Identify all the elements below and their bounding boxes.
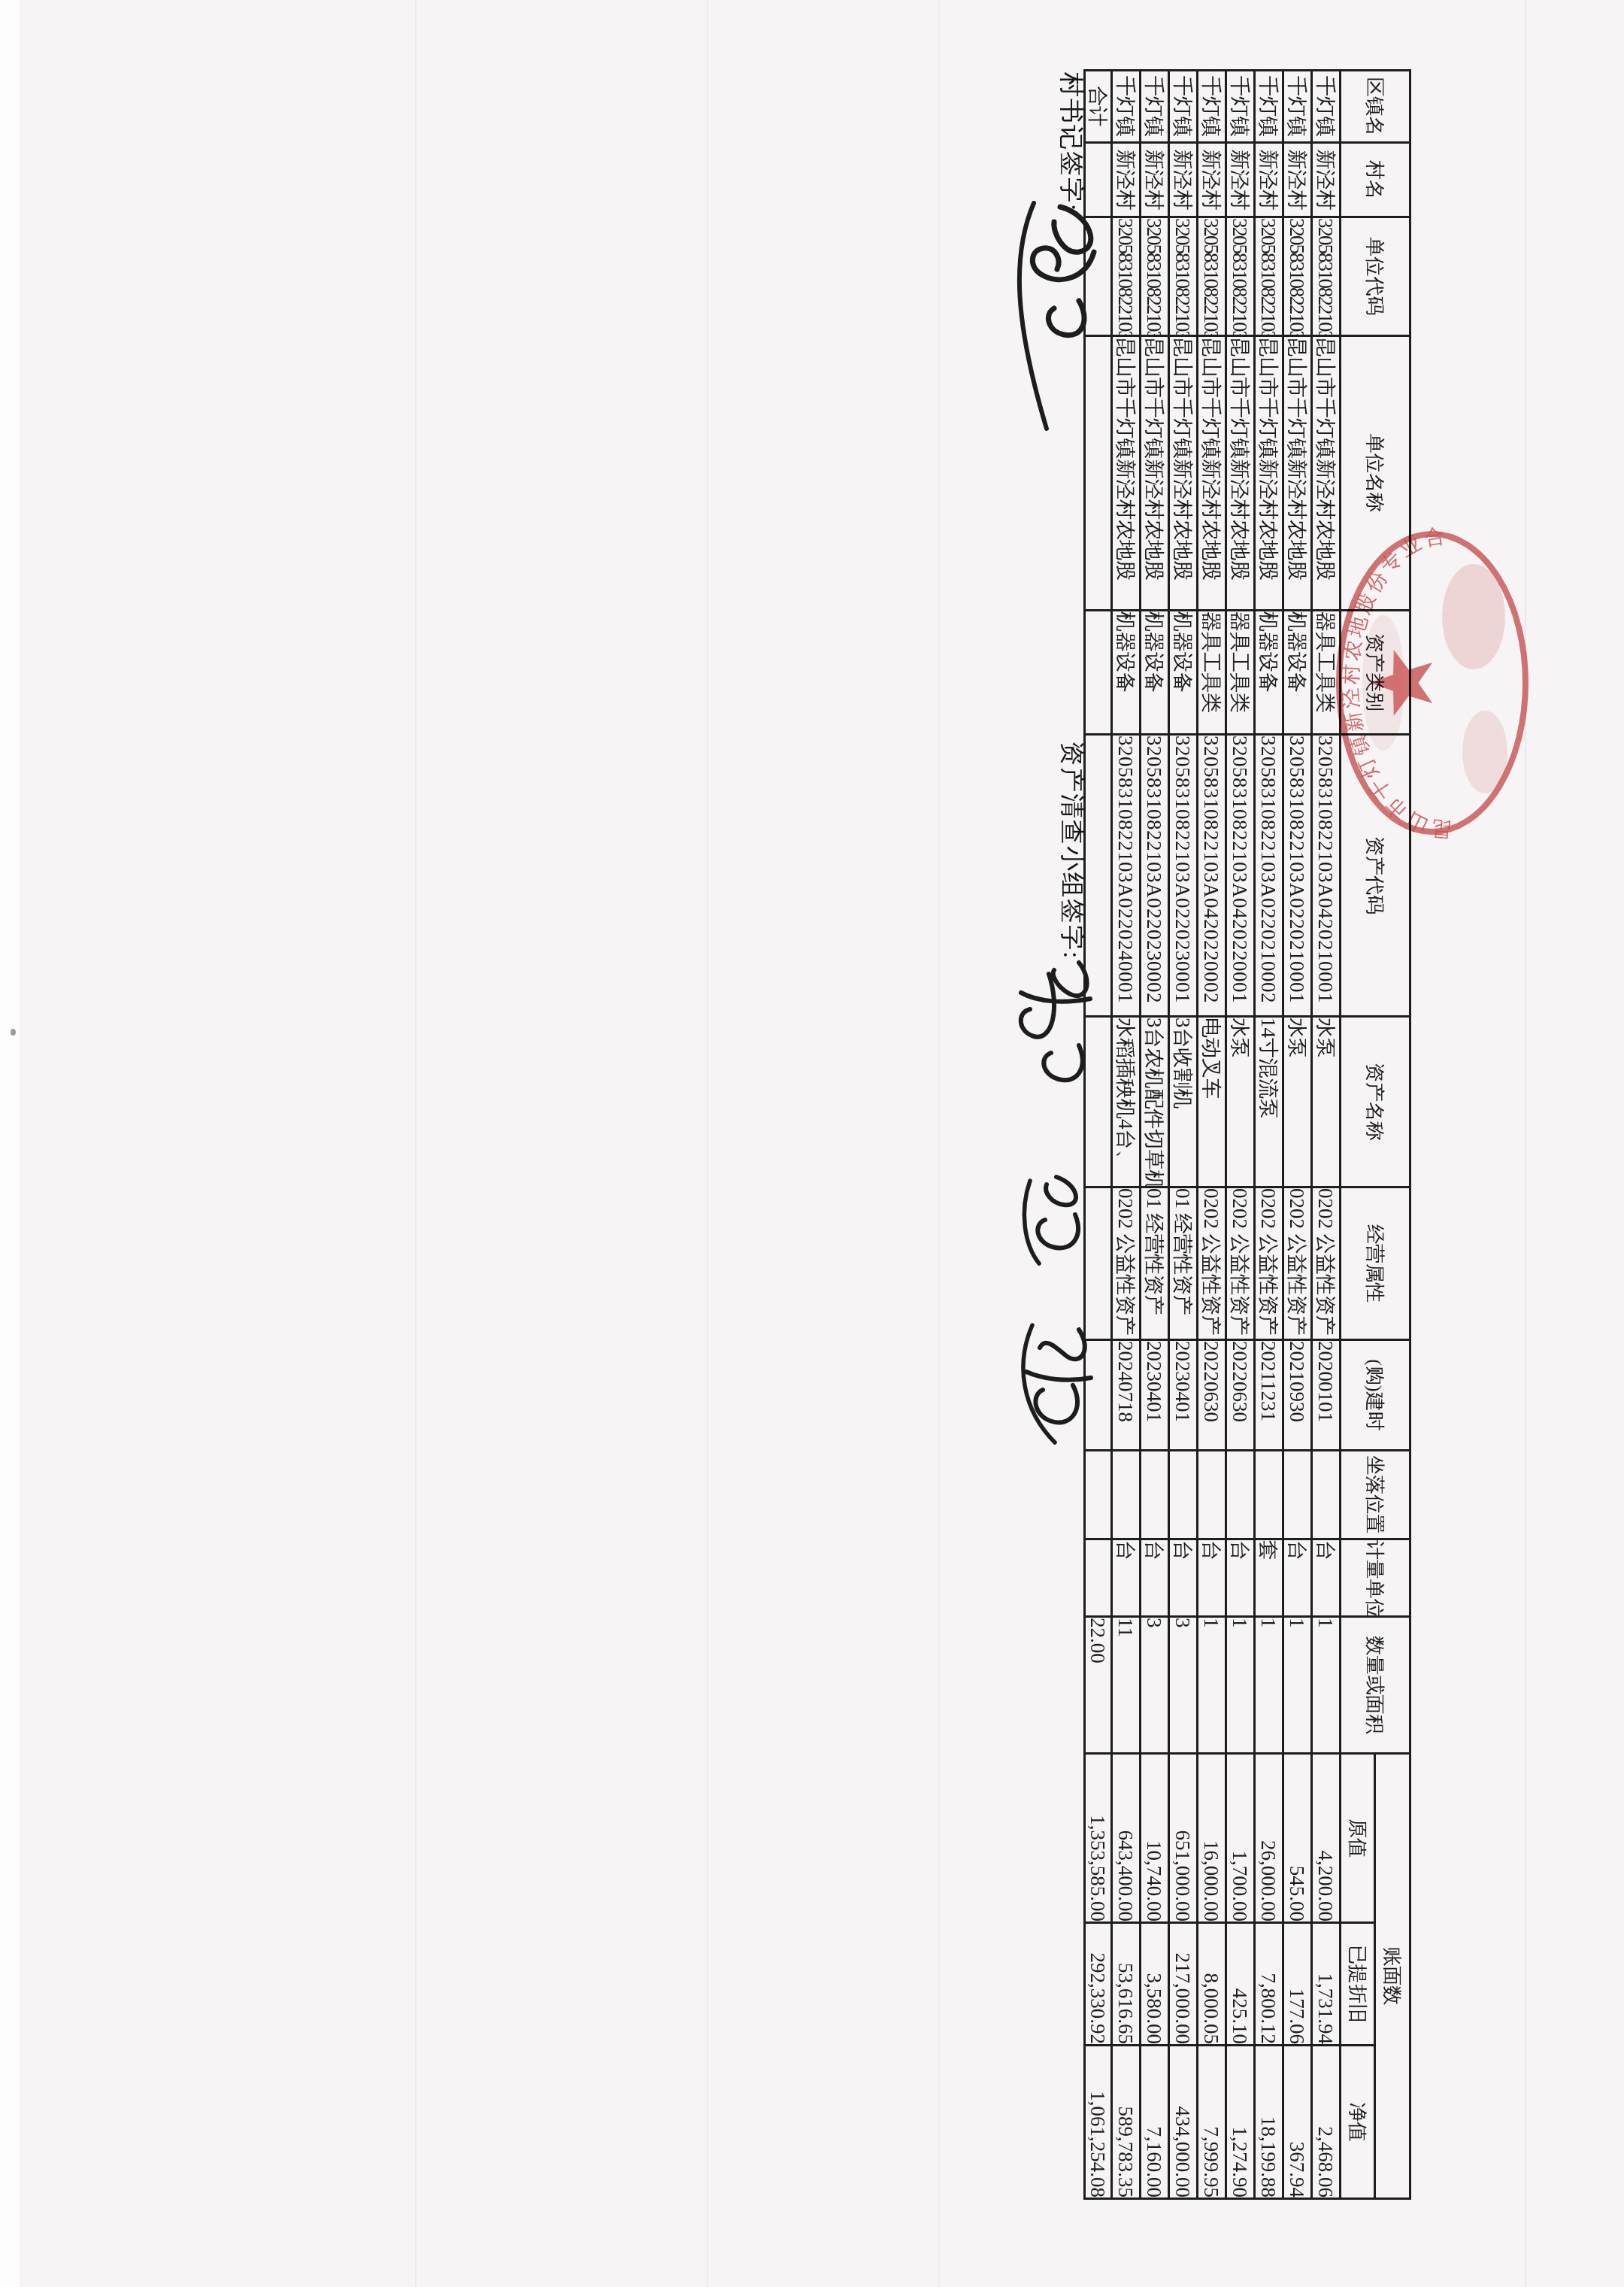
cell-town: 千灯镇: [1141, 71, 1169, 143]
cell-total-quantity: 22.00: [1085, 1617, 1112, 1754]
paper-crease: [707, 0, 708, 2287]
cell-quantity: 1: [1312, 1617, 1341, 1754]
cell-asset-code: 32058310822103A0420220002: [1198, 735, 1226, 1017]
cell-total-net-value: 1,061,254.08: [1085, 2046, 1112, 2199]
cell-unit: 台: [1112, 1539, 1141, 1617]
cell-unit: 台: [1312, 1539, 1341, 1617]
cell-asset-name: 水稻插秧机4台、: [1112, 1017, 1141, 1187]
cell-unit: 台: [1198, 1539, 1226, 1617]
cell-asset-code: 32058310822103A0220210002: [1255, 735, 1283, 1017]
table-row: 千灯镇 新泾村 32058310822103 昆山市千灯镇新泾村农地股 器具工具…: [1226, 71, 1255, 2199]
cell-unit-code: 32058310822103: [1198, 217, 1226, 336]
cell-net-value: 7,160.00: [1141, 2046, 1169, 2199]
cell-attribute: 0202 公益性资产: [1226, 1187, 1255, 1340]
cell-attribute: 0202 公益性资产: [1198, 1187, 1226, 1340]
paper-speck: [11, 1029, 16, 1036]
cell-empty: [1085, 611, 1112, 735]
cell-town: 千灯镇: [1198, 71, 1226, 143]
cell-asset-name: 水泵: [1226, 1017, 1255, 1187]
cell-build-date: 20230401: [1169, 1340, 1198, 1451]
cell-location: [1169, 1451, 1198, 1539]
cell-asset-code: 32058310822103A0220240001: [1112, 735, 1141, 1017]
cell-village: 新泾村: [1169, 143, 1198, 217]
cell-depreciation: 7,800.12: [1255, 1923, 1283, 2046]
cell-unit-name: 昆山市千灯镇新泾村农地股: [1112, 336, 1141, 611]
table-row: 千灯镇 新泾村 32058310822103 昆山市千灯镇新泾村农地股 器具工具…: [1198, 71, 1226, 2199]
cell-category: 机器设备: [1283, 611, 1312, 735]
cell-town: 千灯镇: [1226, 71, 1255, 143]
cell-build-date: 20210930: [1283, 1340, 1312, 1451]
paper-crease: [1525, 0, 1526, 2287]
paper-crease: [938, 0, 940, 2287]
cell-category: 器具工具类: [1198, 611, 1226, 735]
cell-quantity: 1: [1255, 1617, 1283, 1754]
inventory-team-signature-3: [1019, 1309, 1101, 1451]
cell-category: 机器设备: [1255, 611, 1283, 735]
cell-attribute: 0202 公益性资产: [1312, 1187, 1341, 1340]
cell-original-value: 1,700.00: [1226, 1754, 1255, 1923]
cell-category: 机器设备: [1169, 611, 1198, 735]
cell-unit: 台: [1169, 1539, 1198, 1617]
header-location: 坐落位置: [1341, 1451, 1410, 1539]
cell-unit-name: 昆山市千灯镇新泾村农地股: [1226, 336, 1255, 611]
header-depreciation: 已提折旧: [1341, 1923, 1375, 2046]
cell-net-value: 589,783.35: [1112, 2046, 1141, 2199]
cell-attribute: 0202 公益性资产: [1283, 1187, 1312, 1340]
cell-village: 新泾村: [1198, 143, 1226, 217]
cell-total-label: 合计: [1085, 71, 1112, 143]
table-row: 千灯镇 新泾村 32058310822103 昆山市千灯镇新泾村农地股 机器设备…: [1255, 71, 1283, 2199]
cell-location: [1226, 1451, 1255, 1539]
header-unit-code: 单位代码: [1341, 217, 1410, 336]
cell-unit-name: 昆山市千灯镇新泾村农地股: [1283, 336, 1312, 611]
header-original-value: 原值: [1341, 1754, 1375, 1923]
cell-build-date: 20200101: [1312, 1340, 1341, 1451]
cell-village: 新泾村: [1312, 143, 1341, 217]
cell-unit-code: 32058310822103: [1141, 217, 1169, 336]
header-asset-name: 资产名称: [1341, 1017, 1410, 1187]
inventory-team-signature-2: [1015, 1158, 1098, 1278]
cell-location: [1198, 1451, 1226, 1539]
cell-unit-name: 昆山市千灯镇新泾村农地股: [1141, 336, 1169, 611]
official-seal-stamp: 昆山市千灯镇新泾村农地股份专业合作社: [1331, 523, 1534, 842]
cell-net-value: 7,999.95: [1198, 2046, 1226, 2199]
header-unit: 计量单位: [1341, 1539, 1410, 1617]
cell-build-date: 20230401: [1141, 1340, 1169, 1451]
cell-unit-name: 昆山市千灯镇新泾村农地股: [1255, 336, 1283, 611]
cell-unit: 台: [1141, 1539, 1169, 1617]
cell-asset-name: 水泵: [1283, 1017, 1312, 1187]
cell-depreciation: 1,731.94: [1312, 1923, 1341, 2046]
header-net-value: 净值: [1341, 2046, 1375, 2199]
cell-unit-code: 32058310822103: [1226, 217, 1255, 336]
inventory-team-signature-label: 资产清查小组签字:: [1055, 741, 1089, 960]
cell-depreciation: 8,000.05: [1198, 1923, 1226, 2046]
cell-asset-name: 14寸混流泵: [1255, 1017, 1283, 1187]
table-row: 千灯镇 新泾村 32058310822103 昆山市千灯镇新泾村农地股 机器设备…: [1112, 71, 1141, 2199]
cell-asset-code: 32058310822103A0220230001: [1169, 735, 1198, 1017]
cell-unit-name: 昆山市千灯镇新泾村农地股: [1198, 336, 1226, 611]
cell-attribute: 01 经营性资产: [1141, 1187, 1169, 1340]
cell-asset-name: 3台收割机: [1169, 1017, 1198, 1187]
cell-town: 千灯镇: [1255, 71, 1283, 143]
cell-asset-code: 32058310822103A0420220001: [1226, 735, 1255, 1017]
cell-village: 新泾村: [1112, 143, 1141, 217]
cell-unit: 套: [1255, 1539, 1283, 1617]
header-quantity: 数量或面积: [1341, 1617, 1410, 1754]
cell-village: 新泾村: [1283, 143, 1312, 217]
cell-unit: 台: [1283, 1539, 1312, 1617]
cell-quantity: 1: [1198, 1617, 1226, 1754]
cell-unit-code: 32058310822103: [1312, 217, 1341, 336]
table-row: 千灯镇 新泾村 32058310822103 昆山市千灯镇新泾村农地股 机器设备…: [1169, 71, 1198, 2199]
cell-village: 新泾村: [1141, 143, 1169, 217]
cell-original-value: 16,000.00: [1198, 1754, 1226, 1923]
cell-empty: [1085, 1539, 1112, 1617]
table-row: 千灯镇 新泾村 32058310822103 昆山市千灯镇新泾村农地股 机器设备…: [1283, 71, 1312, 2199]
cell-original-value: 643,400.00: [1112, 1754, 1141, 1923]
cell-town: 千灯镇: [1169, 71, 1198, 143]
cell-depreciation: 3,580.00: [1141, 1923, 1169, 2046]
cell-category: 机器设备: [1141, 611, 1169, 735]
cell-net-value: 2,468.06: [1312, 2046, 1341, 2199]
cell-location: [1283, 1451, 1312, 1539]
cell-asset-code: 32058310822103A0220210001: [1283, 735, 1312, 1017]
cell-unit-code: 32058310822103: [1112, 217, 1141, 336]
cell-original-value: 4,200.00: [1312, 1754, 1341, 1923]
cell-depreciation: 425.10: [1226, 1923, 1255, 2046]
header-attribute: 经营属性: [1341, 1187, 1410, 1340]
header-town: 区镇名: [1341, 71, 1410, 143]
header-book-value-group: 账面数: [1375, 1754, 1410, 2199]
header-build-date: (购)建时: [1341, 1340, 1410, 1451]
cell-quantity: 3: [1141, 1617, 1169, 1754]
cell-unit-code: 32058310822103: [1169, 217, 1198, 336]
cell-depreciation: 53,616.65: [1112, 1923, 1141, 2046]
cell-original-value: 545.00: [1283, 1754, 1312, 1923]
cell-original-value: 26,000.00: [1255, 1754, 1283, 1923]
cell-location: [1312, 1451, 1341, 1539]
cell-unit-code: 32058310822103: [1283, 217, 1312, 336]
cell-total-depreciation: 292,330.92: [1085, 1923, 1112, 2046]
cell-net-value: 434,000.00: [1169, 2046, 1198, 2199]
cell-quantity: 11: [1112, 1617, 1141, 1754]
cell-empty: [1085, 1451, 1112, 1539]
cell-total-original-value: 1,353,585.00: [1085, 1754, 1112, 1923]
asset-inventory-table: 区镇名 村名 单位代码 单位名称 资产类别 资产代码 资产名称 经营属性 (购)…: [1083, 69, 1411, 2200]
cell-quantity: 3: [1169, 1617, 1198, 1754]
cell-asset-code: 32058310822103A0220230002: [1141, 735, 1169, 1017]
cell-town: 千灯镇: [1283, 71, 1312, 143]
cell-unit-name: 昆山市千灯镇新泾村农地股: [1169, 336, 1198, 611]
rotated-document-sheet: 区镇名 村名 单位代码 单位名称 资产类别 资产代码 资产名称 经营属性 (购)…: [998, 69, 1411, 2198]
cell-attribute: 01 经营性资产: [1169, 1187, 1198, 1340]
paper-crease: [415, 0, 417, 2287]
cell-depreciation: 177.06: [1283, 1923, 1312, 2046]
cell-attribute: 0202 公益性资产: [1112, 1187, 1141, 1340]
cell-build-date: 20220630: [1226, 1340, 1255, 1451]
cell-depreciation: 217,000.00: [1169, 1923, 1198, 2046]
cell-town: 千灯镇: [1112, 71, 1141, 143]
cell-net-value: 1,274.90: [1226, 2046, 1255, 2199]
cell-attribute: 0202 公益性资产: [1255, 1187, 1283, 1340]
cell-original-value: 651,000.00: [1169, 1754, 1198, 1923]
cell-asset-name: 水泵: [1312, 1017, 1341, 1187]
cell-village: 新泾村: [1226, 143, 1255, 217]
cell-quantity: 1: [1283, 1617, 1312, 1754]
cell-quantity: 1: [1226, 1617, 1255, 1754]
table-row: 千灯镇 新泾村 32058310822103 昆山市千灯镇新泾村农地股 器具工具…: [1312, 71, 1341, 2199]
table-row: 千灯镇 新泾村 32058310822103 昆山市千灯镇新泾村农地股 机器设备…: [1141, 71, 1169, 2199]
inventory-team-signature-1: [1007, 940, 1105, 1106]
cell-category: 器具工具类: [1226, 611, 1255, 735]
cell-asset-name: 电动叉车: [1198, 1017, 1226, 1187]
cell-location: [1112, 1451, 1141, 1539]
cell-unit: 台: [1226, 1539, 1255, 1617]
cell-village: 新泾村: [1255, 143, 1283, 217]
cell-unit-code: 32058310822103: [1255, 217, 1283, 336]
cell-category: 机器设备: [1112, 611, 1141, 735]
cell-location: [1141, 1451, 1169, 1539]
header-village: 村名: [1341, 143, 1410, 217]
cell-town: 千灯镇: [1312, 71, 1341, 143]
cell-build-date: 20240718: [1112, 1340, 1141, 1451]
cell-build-date: 20220630: [1198, 1340, 1226, 1451]
header-row-1: 区镇名 村名 单位代码 单位名称 资产类别 资产代码 资产名称 经营属性 (购)…: [1375, 71, 1410, 2199]
cell-asset-name: 3台农机配件切草机: [1141, 1017, 1169, 1187]
cell-location: [1255, 1451, 1283, 1539]
cell-original-value: 10,740.00: [1141, 1754, 1169, 1923]
cell-net-value: 367.94: [1283, 2046, 1312, 2199]
cell-build-date: 20211231: [1255, 1340, 1283, 1451]
village-secretary-signature: [1000, 188, 1113, 436]
scan-edge: [0, 0, 20, 2287]
cell-net-value: 18,199.88: [1255, 2046, 1283, 2199]
